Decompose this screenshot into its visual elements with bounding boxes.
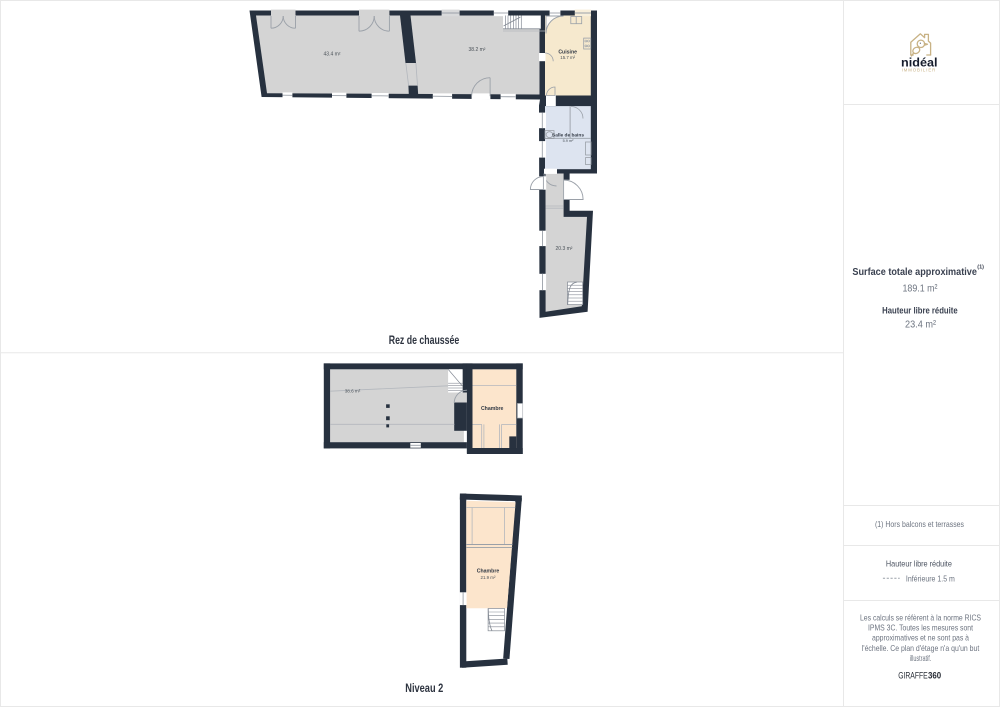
svg-text:Rez de chaussée: Rez de chaussée	[389, 335, 460, 347]
svg-text:Surface totale approximative: Surface totale approximative	[852, 267, 977, 278]
svg-text:43.4 m²: 43.4 m²	[324, 52, 341, 58]
svg-text:Inférieure 1.5 m: Inférieure 1.5 m	[906, 574, 955, 584]
svg-text:189.1 m²: 189.1 m²	[903, 284, 939, 295]
svg-text:Salle de bains: Salle de bains	[552, 133, 584, 139]
svg-text:5.9 m²: 5.9 m²	[563, 139, 574, 143]
svg-text:(1) Hors balcons et terrasses: (1) Hors balcons et terrasses	[875, 519, 964, 529]
svg-text:IMMOBILIER: IMMOBILIER	[902, 68, 937, 73]
svg-text:GIRAFFE: GIRAFFE	[898, 671, 928, 681]
svg-text:IPMS 3C. Toutes les mesures so: IPMS 3C. Toutes les mesures sont	[868, 623, 974, 633]
svg-text:Chambre: Chambre	[477, 569, 500, 575]
svg-text:l'échelle. Ce plan d'étage n'a: l'échelle. Ce plan d'étage n'a qu'un but	[862, 643, 980, 653]
svg-text:(1): (1)	[977, 265, 984, 271]
svg-text:360: 360	[928, 671, 941, 681]
svg-text:Hauteur libre réduite: Hauteur libre réduite	[882, 306, 958, 316]
svg-text:approximatives et ne sont pas: approximatives et ne sont pas à	[872, 633, 969, 643]
svg-text:15.7 m²: 15.7 m²	[560, 55, 575, 60]
svg-text:21.9 m²: 21.9 m²	[481, 575, 496, 580]
svg-text:23.4 m²: 23.4 m²	[905, 320, 937, 331]
svg-text:38.6 m²: 38.6 m²	[345, 389, 361, 394]
svg-text:Chambre: Chambre	[481, 406, 504, 412]
svg-text:Les calculs se réfèrent à la n: Les calculs se réfèrent à la norme RICS	[860, 613, 981, 623]
svg-text:38.2 m²: 38.2 m²	[469, 47, 486, 53]
svg-text:illustratif.: illustratif.	[910, 653, 932, 663]
svg-text:20.3 m²: 20.3 m²	[556, 246, 573, 252]
svg-text:Hauteur libre réduite: Hauteur libre réduite	[886, 559, 952, 569]
svg-text:Niveau 2: Niveau 2	[405, 683, 443, 695]
